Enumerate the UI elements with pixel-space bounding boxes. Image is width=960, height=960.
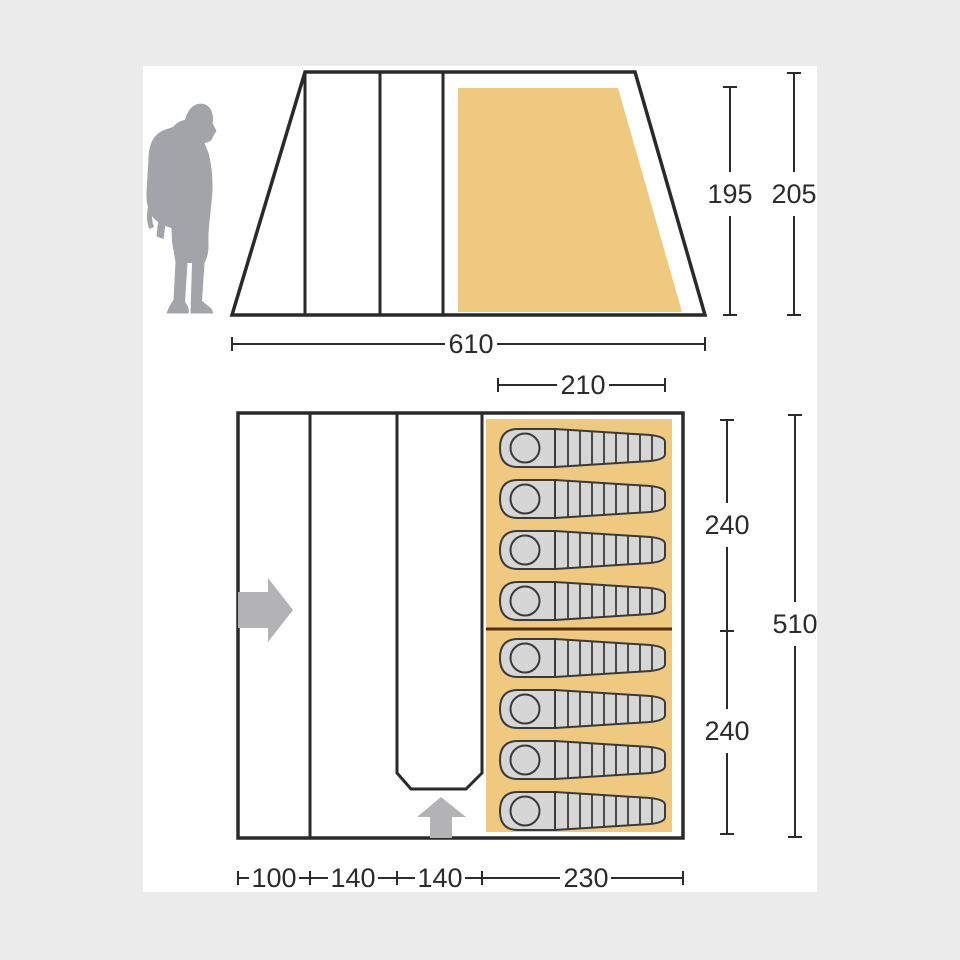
sleeping-bag-icon — [500, 792, 665, 830]
person-silhouette — [146, 104, 216, 314]
page-background: { "diagram": { "side_view": { "inner_hei… — [0, 0, 960, 960]
bedroom-depth-front-label: 240 — [704, 510, 749, 540]
sleeping-bag-icon — [500, 639, 665, 677]
dim-section-widths: 100 140 140 230 — [238, 863, 683, 893]
living-width-1-label: 140 — [330, 863, 375, 893]
tent-floor-plan — [238, 413, 683, 838]
sleeping-bag-icon — [500, 480, 665, 518]
living-width-2-label: 140 — [417, 863, 462, 893]
tent-side-view — [232, 72, 705, 315]
dim-inner-height: 195 — [707, 87, 752, 315]
tent-dimensions-diagram: 195 205 610 — [0, 0, 960, 960]
dim-bedroom-depths: 240 240 — [704, 420, 749, 834]
sleeping-bag-icon — [500, 531, 665, 569]
porch-width-label: 100 — [251, 863, 296, 893]
total-width-label: 610 — [448, 329, 493, 359]
sleeping-bag-icon — [500, 741, 665, 779]
bedroom-width-label: 210 — [560, 370, 605, 400]
outer-height-label: 205 — [771, 179, 816, 209]
front-entrance-notch — [397, 773, 482, 789]
front-entrance-arrow-icon — [417, 797, 466, 838]
sleeping-bag-icon — [500, 429, 665, 467]
total-depth-label: 510 — [772, 609, 817, 639]
bedroom-depth-rear-label: 240 — [704, 716, 749, 746]
dim-outer-height: 205 — [771, 73, 816, 315]
dim-total-depth: 510 — [772, 415, 817, 837]
sleeping-bag-icon — [500, 582, 665, 620]
scale-person-icon — [146, 104, 216, 314]
bedroom-section-width-label: 230 — [563, 863, 608, 893]
dim-total-width: 610 — [232, 329, 705, 359]
backpack-strap — [157, 222, 166, 239]
inner-height-label: 195 — [707, 179, 752, 209]
side-entrance-arrow-icon — [238, 578, 293, 642]
sleeping-bag-icon — [500, 690, 665, 728]
dim-bedroom-width: 210 — [498, 370, 665, 400]
